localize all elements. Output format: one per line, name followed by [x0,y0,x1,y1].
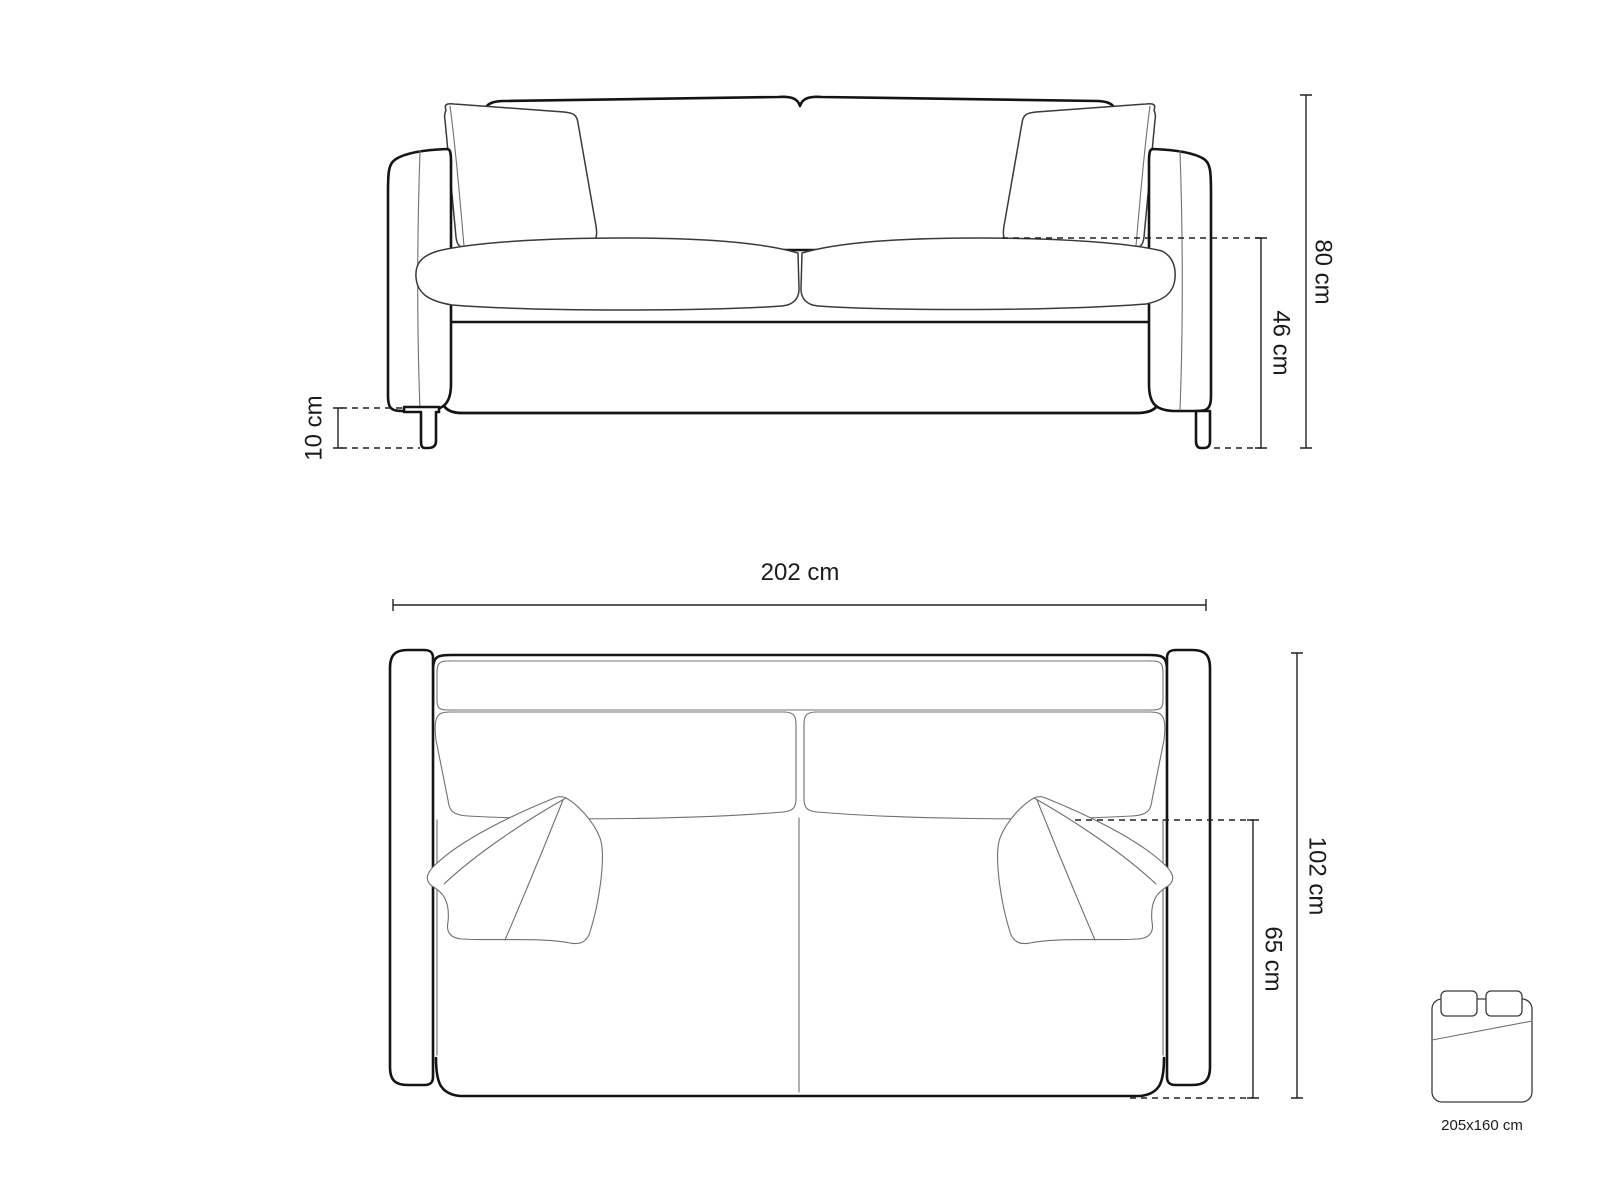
sofa-dimension-diagram: 80 cm 46 cm 10 cm [0,0,1600,1200]
overall-width-dim-line [393,599,1206,611]
front-right-seat-cushion [801,238,1175,310]
diagram-svg: 80 cm 46 cm 10 cm [0,0,1600,1200]
top-right-back-cushion [804,712,1165,819]
sofa-top-view [390,650,1210,1096]
top-right-pillow [998,797,1173,944]
bed-pillow-left-icon [1441,991,1477,1016]
leg-height-label: 10 cm [301,395,328,460]
front-base [440,322,1162,413]
bed-pillow-right-icon [1486,991,1522,1016]
overall-width-label: 202 cm [761,559,840,586]
seat-depth-label: 65 cm [1260,926,1287,991]
seat-height-label: 46 cm [1268,310,1295,375]
sofa-front-view [388,97,1211,448]
front-left-seat-cushion [416,238,799,310]
seat-depth-dim-line [1247,820,1259,1098]
overall-depth-dim-line [1291,653,1303,1098]
top-seat-front-edge [436,1058,1164,1096]
top-left-arm [390,650,433,1085]
sleeping-area-icon: 205x160 cm [1432,991,1532,1134]
top-right-arm [1167,650,1210,1085]
front-left-pillow [445,104,597,247]
top-left-back-cushion [435,712,796,819]
top-left-pillow-outline [427,797,602,944]
top-left-pillow [427,797,602,944]
front-left-leg [404,407,439,448]
top-backrest-inner [437,661,1163,710]
overall-depth-label: 102 cm [1304,837,1331,916]
leg-height-dim-line [333,408,343,448]
front-right-leg [1196,411,1210,448]
sleeping-area-label: 205x160 cm [1441,1117,1523,1134]
front-right-pillow [1003,104,1155,247]
seat-height-dim-line [1255,238,1267,448]
overall-height-label: 80 cm [1310,239,1337,304]
top-right-pillow-outline [998,797,1173,944]
